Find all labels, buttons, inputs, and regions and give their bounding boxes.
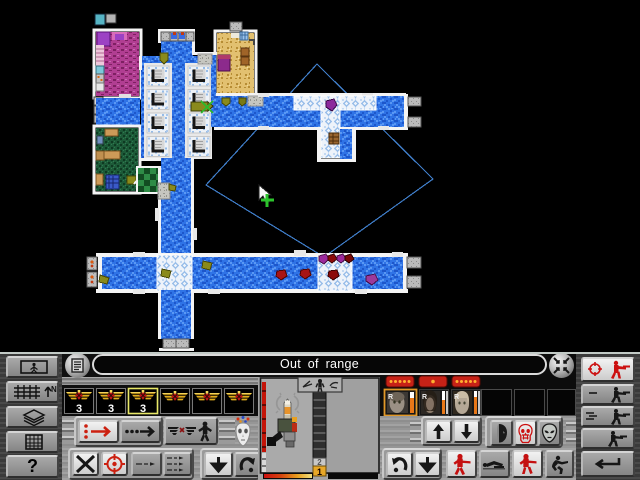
svg-text:R: R [388,394,393,401]
svg-text:R: R [422,394,427,401]
svg-text:1: 1 [317,467,322,477]
svg-text:3: 3 [140,403,146,415]
svg-text:R: R [454,394,459,401]
svg-text:3: 3 [108,403,114,415]
svg-text:3: 3 [76,403,82,415]
svg-text:N: N [51,385,57,394]
